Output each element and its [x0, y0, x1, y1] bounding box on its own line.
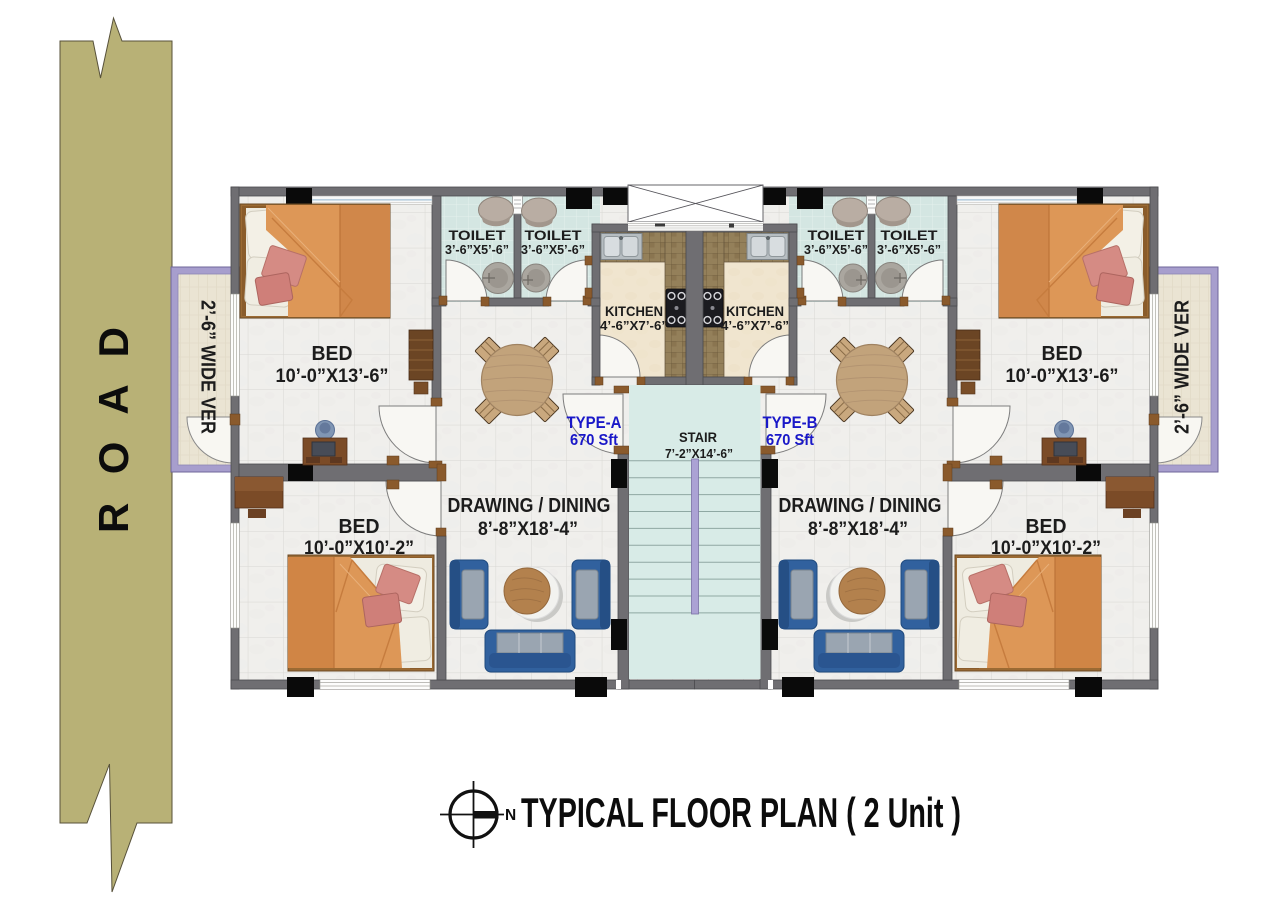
svg-text:670 Sft: 670 Sft — [570, 432, 619, 449]
svg-text:3’-6”X5’-6”: 3’-6”X5’-6” — [804, 242, 868, 257]
svg-text:DRAWING / DINING: DRAWING / DINING — [448, 494, 611, 517]
svg-text:KITCHEN: KITCHEN — [726, 303, 784, 319]
svg-text:670 Sft: 670 Sft — [766, 432, 815, 449]
svg-text:DRAWING / DINING: DRAWING / DINING — [779, 494, 942, 517]
svg-text:8’-8”X18’-4”: 8’-8”X18’-4” — [808, 518, 908, 540]
svg-text:2’-6” WIDE VER: 2’-6” WIDE VER — [1171, 300, 1193, 434]
svg-text:TOILET: TOILET — [449, 227, 507, 243]
svg-text:BED: BED — [339, 516, 380, 538]
svg-text:TYPICAL FLOOR PLAN ( 2 Unit ): TYPICAL FLOOR PLAN ( 2 Unit ) — [521, 789, 961, 836]
svg-text:8’-8”X18’-4”: 8’-8”X18’-4” — [478, 518, 578, 540]
svg-text:4’-6”X7’-6”: 4’-6”X7’-6” — [600, 318, 668, 333]
svg-text:10’-0”X13’-6”: 10’-0”X13’-6” — [276, 365, 389, 387]
svg-text:TOILET: TOILET — [881, 227, 939, 243]
svg-text:2’-6” WIDE VER: 2’-6” WIDE VER — [197, 300, 219, 434]
svg-text:10’-0”X10’-2”: 10’-0”X10’-2” — [304, 537, 414, 559]
svg-text:STAIR: STAIR — [679, 430, 717, 445]
svg-text:3’-6”X5’-6”: 3’-6”X5’-6” — [445, 242, 509, 257]
svg-text:N: N — [505, 807, 516, 824]
svg-text:TYPE-B: TYPE-B — [763, 414, 818, 432]
svg-text:KITCHEN: KITCHEN — [605, 303, 663, 319]
svg-text:TOILET: TOILET — [808, 227, 866, 243]
svg-text:BED: BED — [1042, 343, 1083, 365]
svg-text:BED: BED — [1026, 516, 1067, 538]
svg-text:10’-0”X10’-2”: 10’-0”X10’-2” — [991, 537, 1101, 559]
svg-text:3’-6”X5’-6”: 3’-6”X5’-6” — [877, 242, 941, 257]
svg-text:7’-2”X14’-6”: 7’-2”X14’-6” — [665, 446, 733, 461]
svg-text:3’-6”X5’-6”: 3’-6”X5’-6” — [521, 242, 585, 257]
svg-text:TYPE-A: TYPE-A — [567, 414, 622, 432]
svg-text:10’-0”X13’-6”: 10’-0”X13’-6” — [1006, 365, 1119, 387]
svg-text:TOILET: TOILET — [525, 227, 583, 243]
svg-text:BED: BED — [312, 343, 353, 365]
svg-text:4’-6”X7’-6”: 4’-6”X7’-6” — [721, 318, 789, 333]
